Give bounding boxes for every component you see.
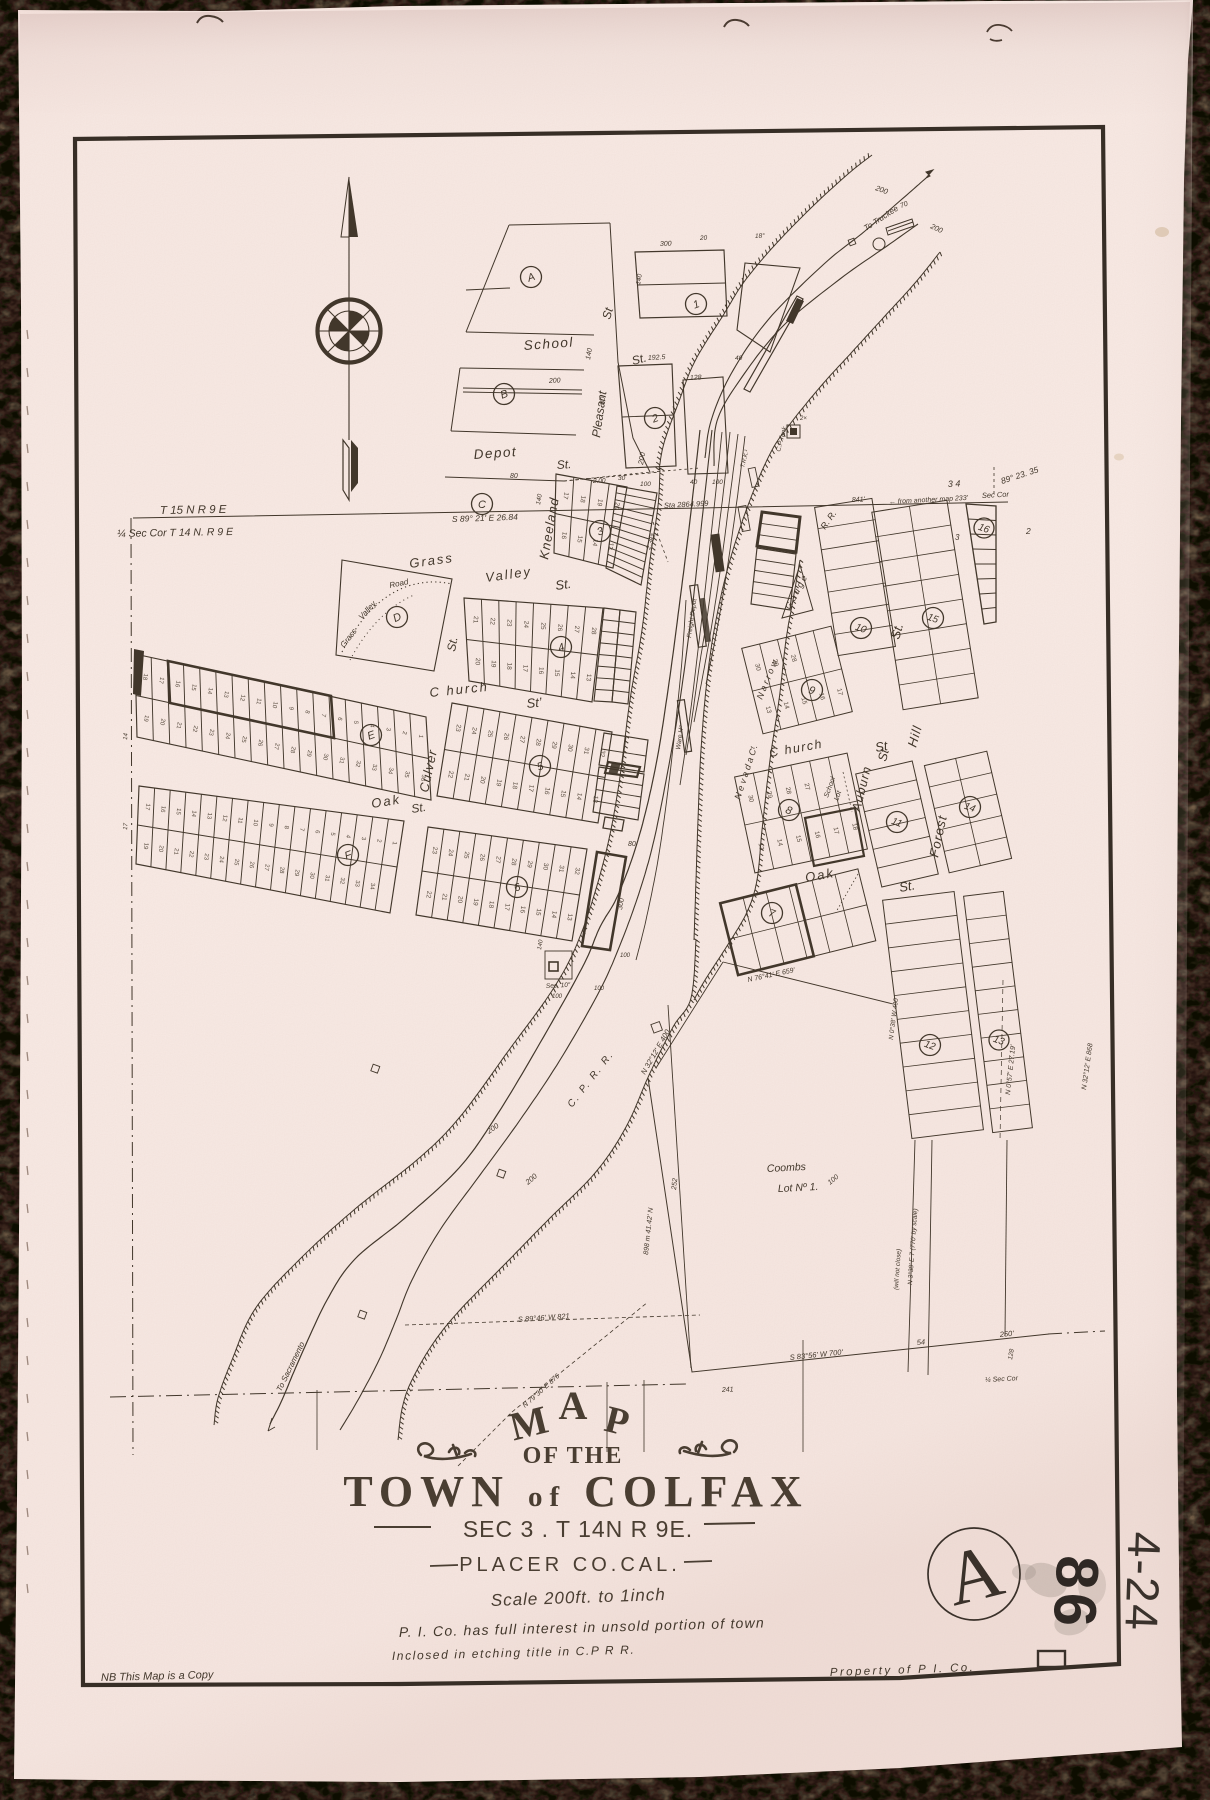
svg-text:14: 14 xyxy=(123,732,130,740)
svg-text:32: 32 xyxy=(573,867,581,876)
svg-text:26: 26 xyxy=(478,853,486,862)
svg-text:20: 20 xyxy=(456,895,464,904)
svg-text:80: 80 xyxy=(510,473,518,480)
svg-text:Coombs: Coombs xyxy=(767,1161,807,1175)
svg-text:T 15 N R 9 E: T 15 N R 9 E xyxy=(160,504,227,517)
svg-text:2.00: 2.00 xyxy=(592,478,606,485)
svg-text:26: 26 xyxy=(556,624,564,632)
svg-text:28: 28 xyxy=(509,858,517,867)
svg-text:14: 14 xyxy=(569,671,577,679)
svg-text:OF THE: OF THE xyxy=(523,1443,624,1469)
svg-text:2: 2 xyxy=(1025,526,1031,536)
svg-text:St.: St. xyxy=(554,576,572,593)
svg-text:22: 22 xyxy=(424,890,432,899)
svg-text:18: 18 xyxy=(487,900,495,909)
svg-text:80: 80 xyxy=(599,396,607,405)
svg-text:27: 27 xyxy=(573,625,581,633)
svg-text:20: 20 xyxy=(473,658,481,666)
svg-text:18: 18 xyxy=(505,662,513,670)
svg-text:17: 17 xyxy=(123,822,130,830)
svg-text:30: 30 xyxy=(618,475,626,482)
svg-text:30: 30 xyxy=(541,862,549,871)
svg-text:St.: St. xyxy=(898,877,916,895)
svg-text:St’: St’ xyxy=(526,694,544,711)
svg-text:3 4: 3 4 xyxy=(948,478,961,489)
svg-text:15: 15 xyxy=(534,908,542,917)
svg-text:TOWN of COLFAX: TOWN of COLFAX xyxy=(343,1467,808,1516)
svg-text:841': 841' xyxy=(852,496,866,504)
svg-text:192.5: 192.5 xyxy=(648,354,666,362)
svg-text:31: 31 xyxy=(557,865,565,874)
svg-text:C: C xyxy=(478,499,486,511)
svg-text:54: 54 xyxy=(916,1337,925,1347)
svg-text:14: 14 xyxy=(550,910,558,919)
svg-text:15: 15 xyxy=(553,669,561,677)
svg-text:2×: 2× xyxy=(799,416,807,422)
svg-text:300: 300 xyxy=(660,241,672,248)
svg-text:16: 16 xyxy=(537,667,545,675)
svg-text:200: 200 xyxy=(548,377,561,385)
svg-text:19: 19 xyxy=(471,898,479,907)
svg-text:SEC 3 . T 14N R 9E.: SEC 3 . T 14N R 9E. xyxy=(463,1516,693,1542)
svg-text:21: 21 xyxy=(471,616,479,624)
svg-text:19: 19 xyxy=(489,660,497,668)
svg-text:St.: St. xyxy=(410,800,427,816)
svg-text:100: 100 xyxy=(552,994,563,1000)
svg-text:80: 80 xyxy=(628,841,636,848)
svg-text:20: 20 xyxy=(699,235,708,242)
svg-text:241: 241 xyxy=(721,1386,734,1394)
svg-text:250': 250' xyxy=(998,1329,1014,1339)
svg-text:29: 29 xyxy=(525,860,533,869)
svg-text:100: 100 xyxy=(640,481,651,488)
svg-text:St.: St. xyxy=(556,457,572,472)
svg-text:23: 23 xyxy=(430,846,438,855)
svg-text:252: 252 xyxy=(671,1178,679,1191)
svg-text:Depot: Depot xyxy=(473,444,517,462)
svg-text:21: 21 xyxy=(440,893,448,902)
svg-text:16: 16 xyxy=(518,905,526,914)
svg-text:23: 23 xyxy=(505,619,513,627)
svg-text:13: 13 xyxy=(565,913,573,922)
svg-text:PLACER CO.CAL.: PLACER CO.CAL. xyxy=(459,1554,681,1576)
svg-text:27: 27 xyxy=(494,856,502,865)
svg-text:Sec. 10″: Sec. 10″ xyxy=(546,982,571,990)
svg-text:100: 100 xyxy=(620,953,631,959)
svg-text:17: 17 xyxy=(521,664,529,672)
svg-text:22: 22 xyxy=(488,617,496,625)
svg-text:25: 25 xyxy=(539,622,547,630)
svg-text:3: 3 xyxy=(955,533,960,542)
svg-text:100: 100 xyxy=(712,479,723,486)
svg-text:24: 24 xyxy=(446,849,454,858)
svg-text:86: 86 xyxy=(1041,1554,1112,1632)
svg-text:Sec Cor: Sec Cor xyxy=(982,490,1010,500)
svg-text:28: 28 xyxy=(590,627,598,635)
svg-text:25: 25 xyxy=(462,851,470,860)
svg-text:Lot Nº 1.: Lot Nº 1. xyxy=(778,1181,819,1195)
svg-text:A: A xyxy=(559,1383,588,1428)
svg-text:St.: St. xyxy=(444,636,460,653)
svg-text:24: 24 xyxy=(522,621,530,629)
svg-text:13: 13 xyxy=(585,674,593,682)
svg-text:17: 17 xyxy=(503,903,511,912)
svg-text:4-24: 4-24 xyxy=(1115,1531,1170,1633)
svg-text:¼ Sec Cor T 14 N. R 9 E: ¼ Sec Cor T 14 N. R 9 E xyxy=(117,526,234,540)
svg-text:18°: 18° xyxy=(755,232,766,240)
